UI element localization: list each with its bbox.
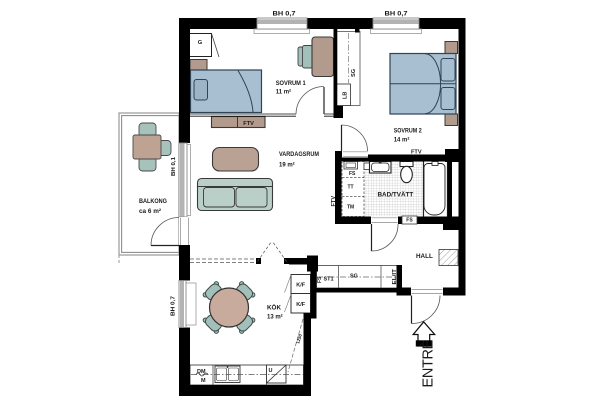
svg-text:SOVRUM 1: SOVRUM 1: [276, 80, 306, 87]
svg-text:TM: TM: [347, 205, 354, 211]
svg-text:VARDAGSRUM: VARDAGSRUM: [279, 152, 319, 158]
svg-text:ca 6 m²: ca 6 m²: [139, 208, 161, 215]
svg-text:FS: FS: [406, 218, 413, 224]
svg-text:TT: TT: [348, 185, 354, 191]
svg-text:FTV: FTV: [243, 121, 254, 127]
svg-text:SG: SG: [350, 274, 358, 280]
svg-text:FTV: FTV: [411, 150, 422, 156]
svg-text:BH 0,1: BH 0,1: [171, 157, 177, 176]
svg-text:11 m²: 11 m²: [276, 89, 291, 96]
svg-text:ST1: ST1: [323, 277, 333, 283]
svg-text:SG: SG: [351, 69, 357, 77]
svg-text:BH 0,7: BH 0,7: [385, 11, 408, 18]
svg-text:LB: LB: [343, 92, 349, 99]
svg-text:BH 0,7: BH 0,7: [171, 296, 177, 316]
svg-text:K/F: K/F: [296, 283, 306, 289]
svg-text:FTV: FTV: [331, 196, 337, 207]
svg-text:19 m²: 19 m²: [279, 162, 295, 169]
svg-text:13 m²: 13 m²: [267, 314, 283, 321]
svg-text:U: U: [269, 368, 273, 374]
svg-text:ENTRÈ: ENTRÈ: [420, 339, 437, 387]
svg-text:FS: FS: [317, 276, 323, 283]
svg-text:FS: FS: [349, 171, 356, 177]
svg-text:BH 0,7: BH 0,7: [273, 11, 296, 18]
svg-text:G: G: [198, 40, 203, 46]
svg-text:EL/IT: EL/IT: [392, 268, 398, 285]
svg-text:BAD/TVÄTT: BAD/TVÄTT: [378, 191, 414, 199]
svg-text:SOVRUM 2: SOVRUM 2: [394, 128, 422, 135]
svg-text:KÖK: KÖK: [267, 303, 281, 312]
svg-text:14 m²: 14 m²: [394, 137, 410, 144]
svg-text:M: M: [201, 378, 206, 384]
svg-text:K/F: K/F: [296, 302, 306, 308]
svg-text:BALKONG: BALKONG: [139, 198, 167, 205]
svg-text:HALL: HALL: [416, 253, 433, 260]
